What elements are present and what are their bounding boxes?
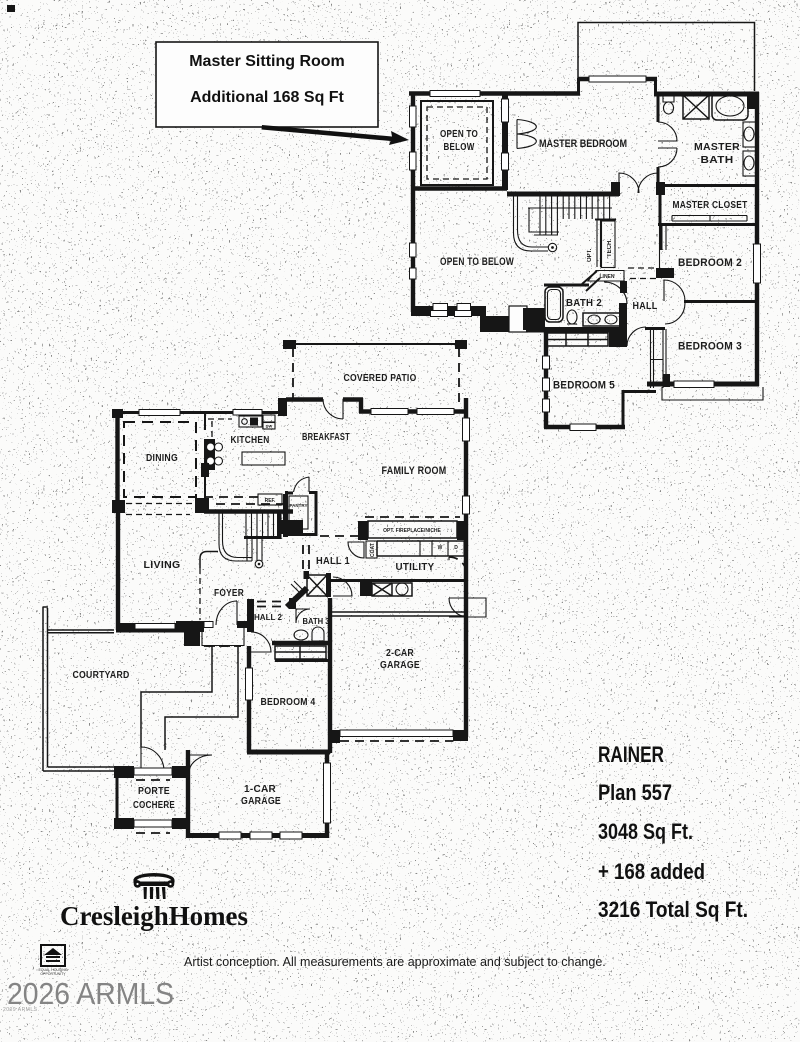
svg-text:GARAGE: GARAGE <box>241 796 281 807</box>
svg-text:3048 Sq Ft.: 3048 Sq Ft. <box>598 819 693 844</box>
svg-text:1-CAR: 1-CAR <box>244 784 276 795</box>
svg-text:PORTE: PORTE <box>138 786 170 797</box>
svg-text:PANTRY: PANTRY <box>290 503 308 508</box>
svg-text:DW: DW <box>266 424 273 429</box>
svg-text:+ 168 added: + 168 added <box>598 859 705 884</box>
svg-text:COURTYARD: COURTYARD <box>73 670 130 681</box>
svg-text:2-CAR: 2-CAR <box>386 648 414 659</box>
svg-text:W: W <box>438 545 443 551</box>
svg-text:OPT. FIREPLACE/NICHE: OPT. FIREPLACE/NICHE <box>383 528 441 534</box>
svg-text:MASTER BEDROOM: MASTER BEDROOM <box>539 138 627 150</box>
svg-text:LINEN: LINEN <box>600 274 615 280</box>
svg-text:OPT.: OPT. <box>587 248 593 262</box>
svg-text:CresleighHomes: CresleighHomes <box>60 901 248 931</box>
svg-text:COCHERE: COCHERE <box>133 800 175 811</box>
svg-text:BATH: BATH <box>701 155 734 166</box>
svg-text:OPEN TO: OPEN TO <box>440 129 478 140</box>
svg-text:DINING: DINING <box>146 453 178 464</box>
svg-text:BATH 3: BATH 3 <box>303 617 331 626</box>
svg-text:3216 Total Sq Ft.: 3216 Total Sq Ft. <box>598 897 748 922</box>
svg-text:GARAGE: GARAGE <box>380 660 420 671</box>
svg-text:LIVING: LIVING <box>144 560 181 571</box>
svg-text:HALL 2: HALL 2 <box>254 613 283 622</box>
svg-text:BEDROOM 3: BEDROOM 3 <box>678 341 742 353</box>
svg-text:D: D <box>454 545 458 551</box>
svg-text:COAT: COAT <box>370 543 376 557</box>
svg-text:RAINER: RAINER <box>598 742 664 767</box>
svg-text:FOYER: FOYER <box>214 588 244 599</box>
svg-text:Master Sitting Room: Master Sitting Room <box>189 53 345 70</box>
svg-text:BREAKFAST: BREAKFAST <box>302 432 350 443</box>
svg-text:FAMILY ROOM: FAMILY ROOM <box>382 465 447 477</box>
svg-text:BEDROOM 5: BEDROOM 5 <box>553 380 615 392</box>
svg-text:Additional 168 Sq Ft: Additional 168 Sq Ft <box>190 89 344 106</box>
svg-text:OPEN TO BELOW: OPEN TO BELOW <box>440 256 514 268</box>
svg-text:KITCHEN: KITCHEN <box>231 435 270 446</box>
svg-text:BEDROOM 4: BEDROOM 4 <box>261 697 316 708</box>
svg-text:TECH.: TECH. <box>607 239 613 257</box>
svg-text:2009 ARMLS: 2009 ARMLS <box>3 1007 38 1013</box>
svg-text:HALL: HALL <box>633 301 658 312</box>
svg-text:BEDROOM 2: BEDROOM 2 <box>678 257 742 269</box>
svg-text:2026 ARMLS: 2026 ARMLS <box>7 976 174 1011</box>
svg-text:HALL 1: HALL 1 <box>316 556 350 567</box>
svg-text:Plan 557: Plan 557 <box>598 780 672 805</box>
svg-text:BATH 2: BATH 2 <box>566 298 602 309</box>
svg-text:MASTER: MASTER <box>694 142 740 153</box>
svg-text:MASTER CLOSET: MASTER CLOSET <box>673 200 748 211</box>
svg-text:BELOW: BELOW <box>444 142 475 153</box>
svg-text:Artist conception. All measure: Artist conception. All measurements are … <box>184 955 606 969</box>
svg-text:COVERED PATIO: COVERED PATIO <box>344 373 417 384</box>
svg-text:UTILITY: UTILITY <box>396 562 435 573</box>
